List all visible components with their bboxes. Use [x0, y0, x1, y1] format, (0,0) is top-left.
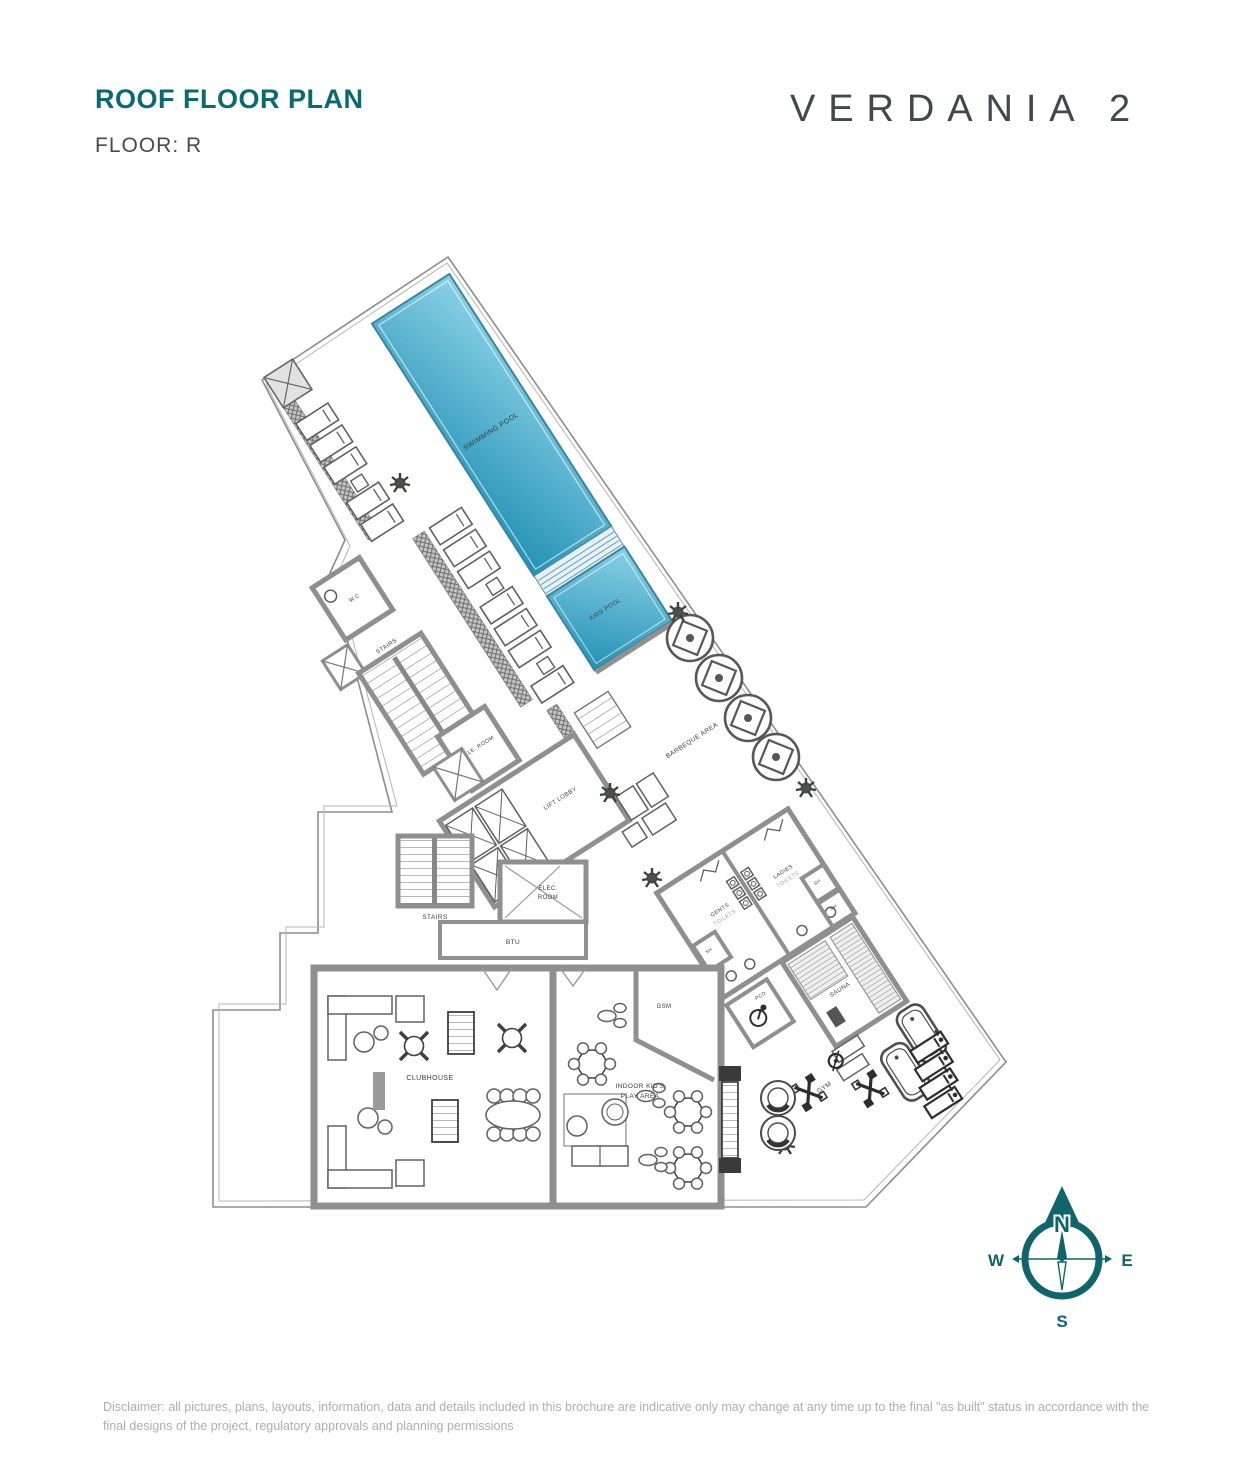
btu-label: BTU	[506, 939, 520, 946]
kids-play-room: GSM INDOOR KID'S PLAY AREA	[553, 968, 721, 1206]
clubhouse-room: CLUBHOUSE	[314, 968, 553, 1206]
compass-s: S	[1056, 1312, 1067, 1331]
btu-room: BTU	[440, 922, 586, 958]
gsm-label: GSM	[657, 1004, 672, 1010]
stairs-lower-label: STAIRS	[422, 914, 448, 921]
compass-w: W	[988, 1251, 1005, 1270]
foosball-table	[448, 1012, 474, 1054]
elec-room-label-1: ELEC.	[538, 886, 557, 892]
floor-plan-svg: SWIMMING POOL KIDS POOL	[0, 0, 1241, 1477]
dining-set	[486, 1089, 540, 1141]
clubhouse-label: CLUBHOUSE	[406, 1075, 453, 1082]
game-table	[400, 1032, 428, 1060]
stairs-lower: STAIRS	[398, 836, 472, 921]
game-table	[498, 1024, 526, 1052]
elec-room-label-2: ROOM	[538, 895, 558, 901]
disclaimer-text: Disclaimer: all pictures, plans, layouts…	[103, 1398, 1161, 1437]
kids-area-label-1: INDOOR KID'S	[615, 1083, 664, 1090]
kids-area-label-2: PLAY AREA	[621, 1093, 660, 1100]
elec-room: ELEC. ROOM	[500, 862, 586, 922]
foosball-table	[432, 1100, 458, 1142]
gym-shelf	[719, 1066, 741, 1173]
hanging-chair	[761, 1116, 795, 1150]
brochure-page: { "header": { "title": "ROOF FLOOR PLAN"…	[0, 0, 1241, 1477]
pouf	[567, 1116, 587, 1136]
compass-n: N	[1054, 1212, 1070, 1237]
compass: N W E S	[988, 1186, 1133, 1331]
partition	[373, 1072, 385, 1110]
armchair	[602, 1099, 628, 1125]
compass-e: E	[1121, 1251, 1132, 1270]
hanging-chair	[761, 1081, 795, 1115]
